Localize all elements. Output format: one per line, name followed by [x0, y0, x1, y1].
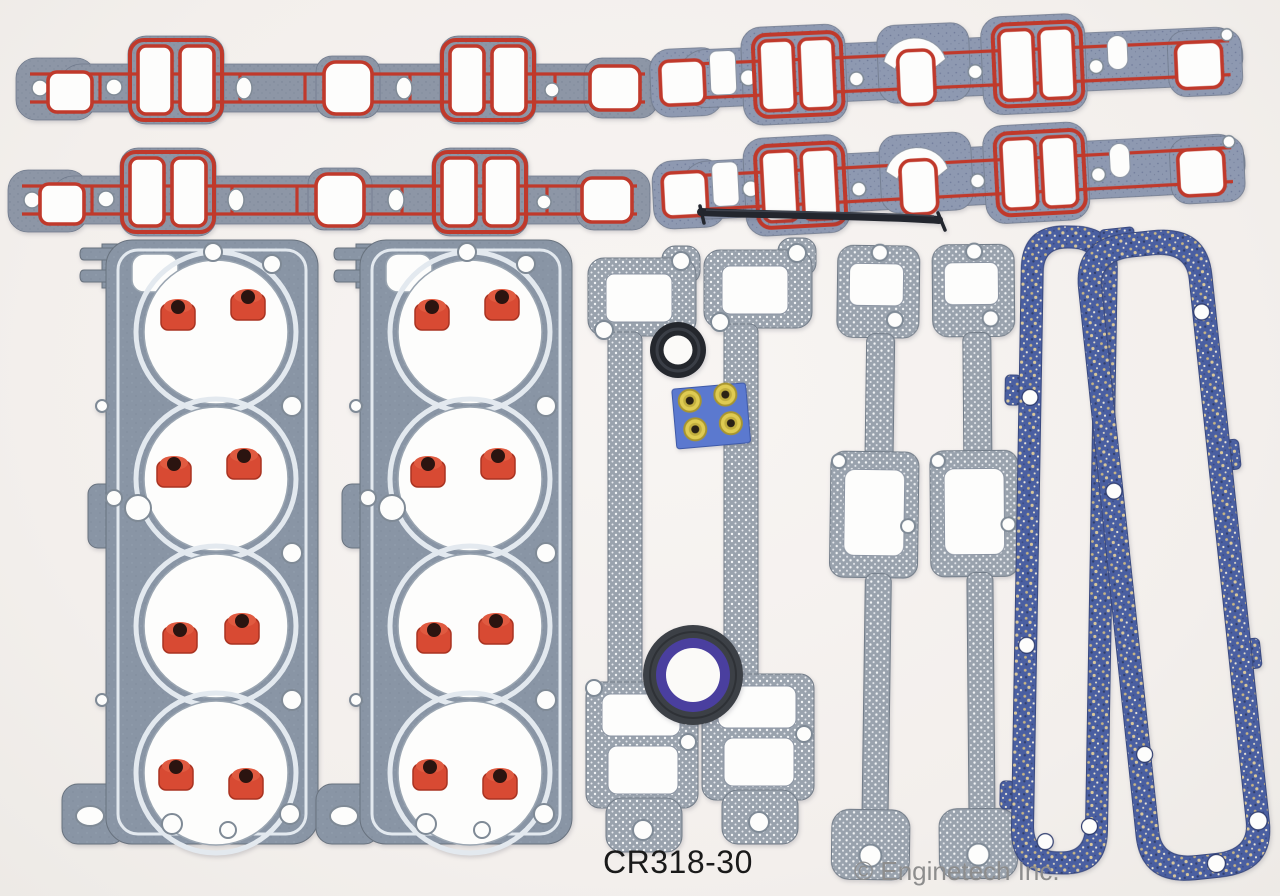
timing-cover-seal	[643, 625, 743, 725]
gasket-set-illustration	[0, 0, 1280, 896]
water-outlet-seal-ring	[650, 322, 706, 378]
grommet-card-blue	[672, 382, 751, 449]
cylinder-head-gasket-left	[62, 240, 318, 853]
part-number-label: CR318-30	[603, 844, 753, 881]
cylinder-head-gasket-right	[316, 240, 572, 853]
exhaust-manifold-gasket-2	[702, 238, 816, 844]
product-photo: CR318-30 © Enginetech Inc.	[0, 0, 1280, 896]
intake-manifold-gasket-lower-right	[650, 113, 1247, 242]
intake-manifold-gasket-lower-left	[8, 148, 650, 236]
exhaust-manifold-gasket-3	[825, 244, 922, 880]
intake-manifold-gasket-upper-left	[16, 36, 658, 124]
intake-manifold-gasket-upper-right	[648, 6, 1245, 130]
copyright-label: © Enginetech Inc.	[854, 856, 1060, 887]
